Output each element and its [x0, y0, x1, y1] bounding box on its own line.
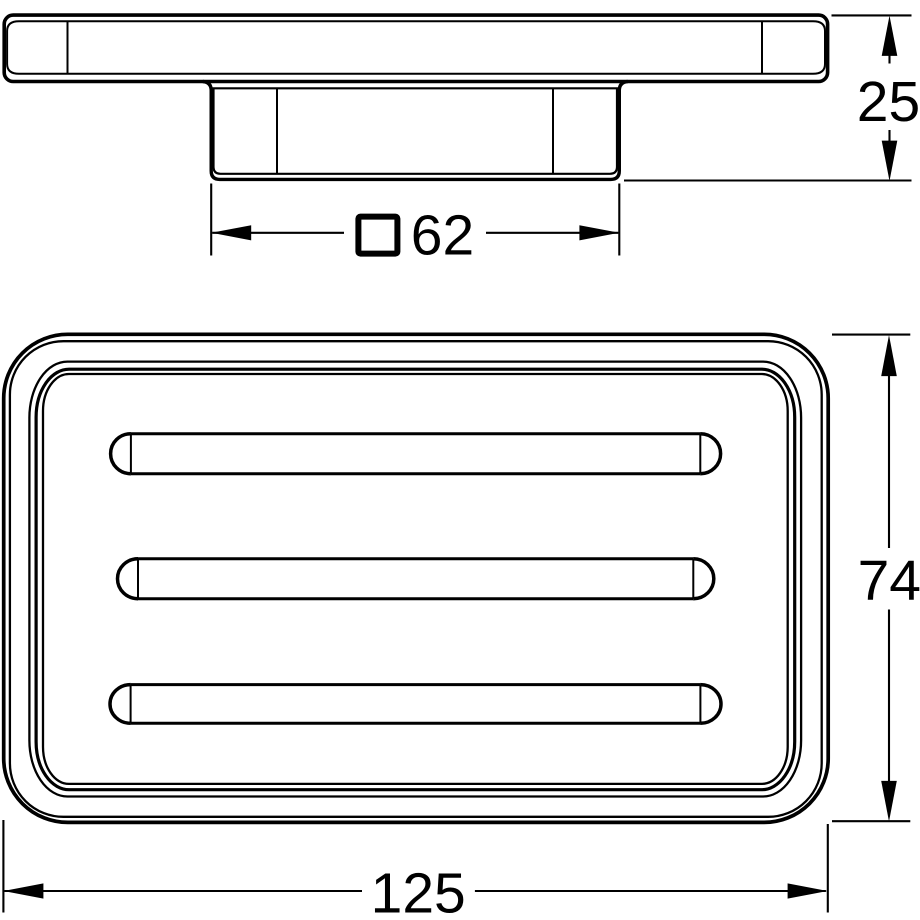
svg-text:74: 74 [858, 549, 920, 613]
svg-text:25: 25 [857, 70, 920, 134]
svg-text:125: 125 [371, 862, 466, 920]
svg-text:62: 62 [411, 204, 474, 268]
